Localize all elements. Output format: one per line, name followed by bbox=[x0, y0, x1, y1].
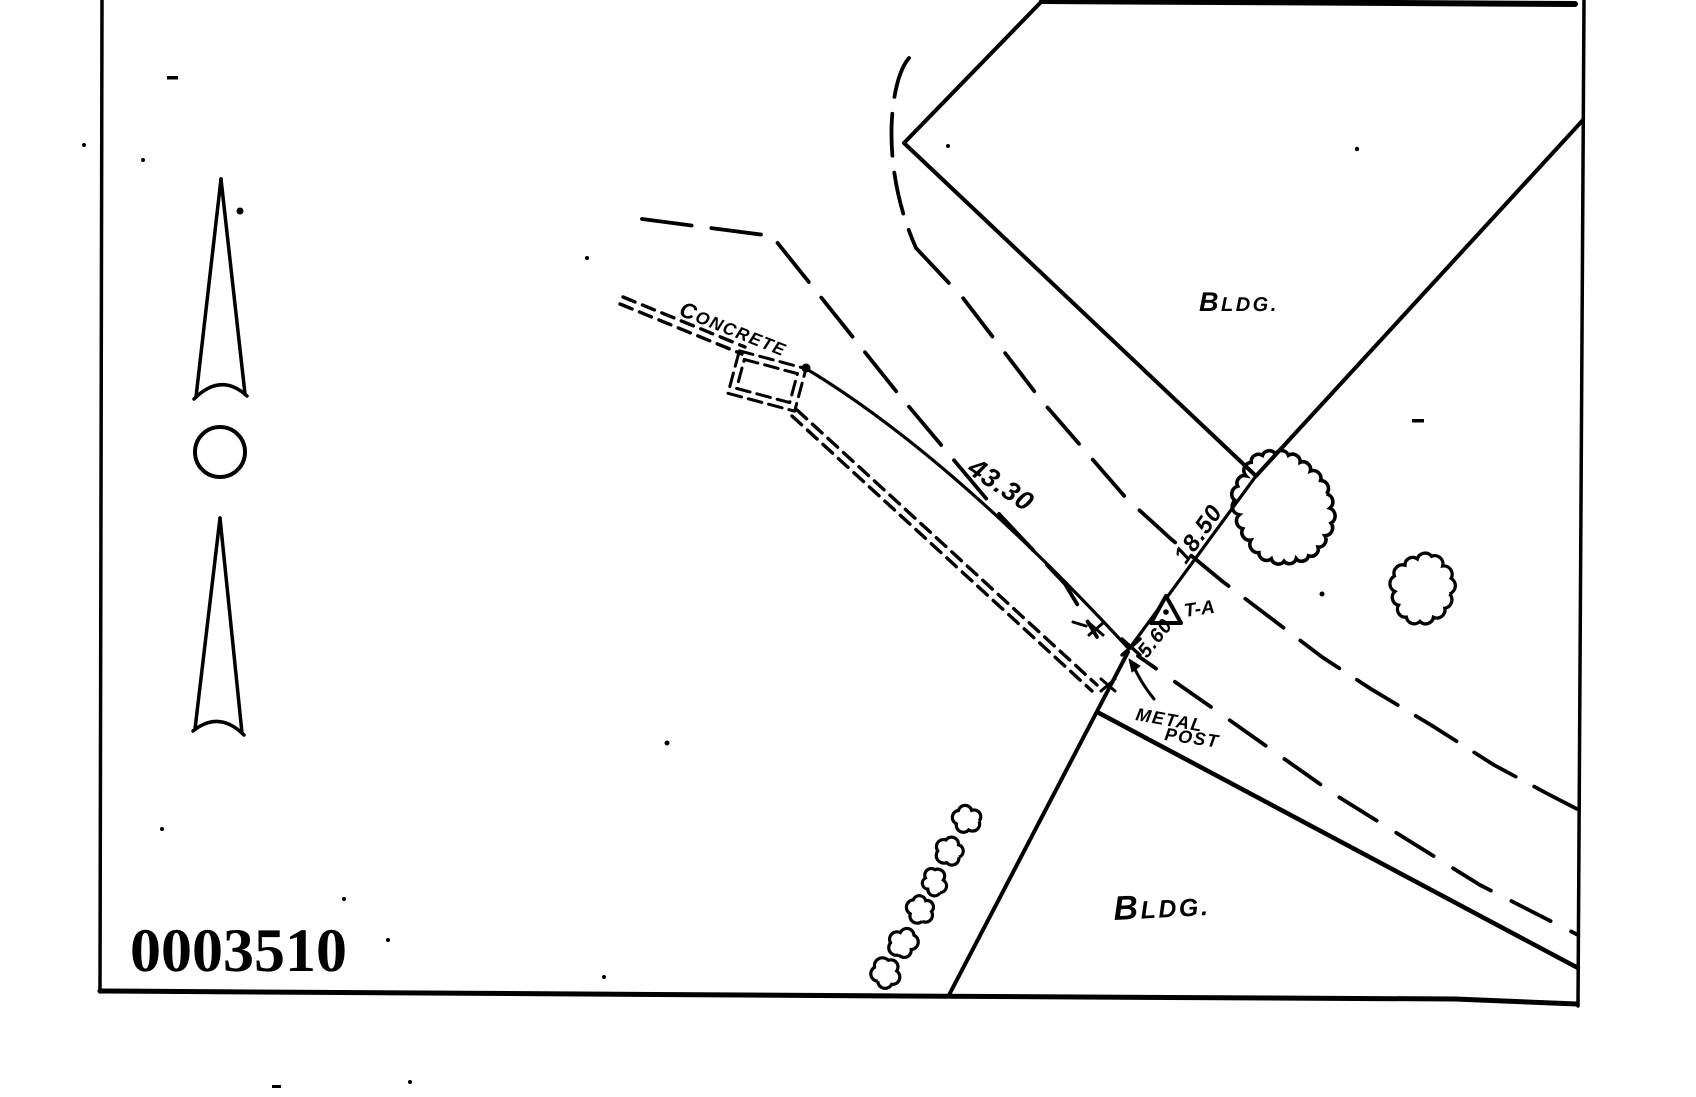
svg-text:T-A: T-A bbox=[1183, 597, 1216, 622]
svg-text:0003510: 0003510 bbox=[130, 917, 347, 985]
